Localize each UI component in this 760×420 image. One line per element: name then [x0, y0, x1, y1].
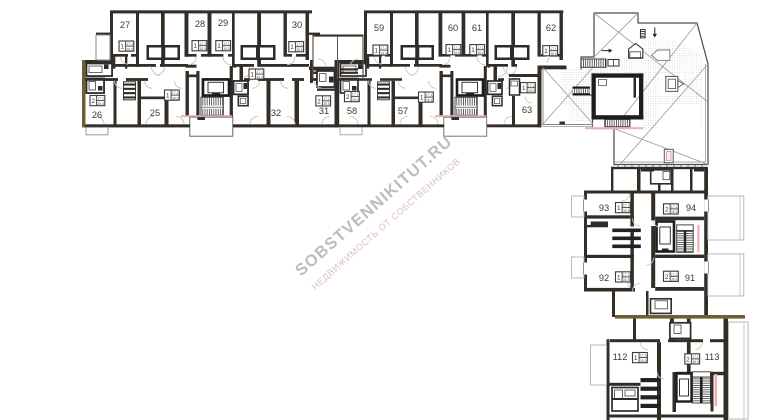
svg-text:1: 1	[544, 48, 548, 55]
svg-text:38.8: 38.8	[126, 47, 133, 51]
svg-text:17.1: 17.1	[126, 42, 133, 46]
svg-text:28: 28	[195, 19, 205, 29]
svg-text:38.8: 38.8	[352, 98, 359, 102]
svg-text:38.8: 38.8	[671, 210, 678, 214]
svg-text:17.1: 17.1	[528, 84, 535, 88]
svg-text:2: 2	[317, 98, 321, 105]
svg-text:91: 91	[685, 273, 695, 283]
svg-text:17.1: 17.1	[623, 273, 630, 277]
svg-text:113: 113	[705, 352, 720, 362]
svg-text:38.8: 38.8	[477, 51, 484, 55]
svg-text:38.8: 38.8	[323, 102, 330, 106]
svg-text:1: 1	[471, 47, 475, 54]
svg-text:29: 29	[218, 18, 228, 28]
svg-text:1: 1	[193, 43, 197, 50]
svg-text:17.1: 17.1	[97, 97, 104, 101]
svg-text:17.1: 17.1	[380, 46, 387, 50]
svg-text:38.8: 38.8	[223, 47, 230, 51]
svg-text:30: 30	[292, 20, 302, 30]
svg-text:31: 31	[319, 106, 329, 116]
svg-text:17.1: 17.1	[199, 42, 206, 46]
svg-text:17.1: 17.1	[477, 46, 484, 50]
svg-text:1: 1	[166, 93, 170, 100]
svg-text:112: 112	[613, 352, 628, 362]
svg-text:2: 2	[686, 356, 690, 363]
svg-text:32: 32	[271, 108, 281, 118]
svg-text:17.1: 17.1	[323, 97, 330, 101]
svg-text:63: 63	[522, 105, 532, 115]
svg-text:1: 1	[217, 43, 221, 50]
svg-text:38.8: 38.8	[671, 278, 678, 282]
svg-text:62: 62	[546, 23, 556, 33]
svg-text:17.1: 17.1	[426, 93, 433, 97]
svg-text:17.1: 17.1	[640, 354, 647, 358]
svg-text:17.1: 17.1	[256, 70, 263, 74]
svg-text:17.1: 17.1	[550, 47, 557, 51]
svg-text:1: 1	[522, 85, 526, 92]
svg-text:38.8: 38.8	[528, 89, 535, 93]
svg-text:1: 1	[250, 72, 254, 79]
svg-text:38.8: 38.8	[426, 98, 433, 102]
svg-text:1: 1	[617, 205, 621, 212]
svg-text:27: 27	[120, 20, 130, 30]
svg-text:2: 2	[346, 94, 350, 101]
svg-text:17.1: 17.1	[671, 272, 678, 276]
svg-text:38.8: 38.8	[97, 102, 104, 106]
svg-text:38.8: 38.8	[172, 96, 179, 100]
svg-text:2: 2	[91, 98, 95, 105]
svg-text:38.8: 38.8	[550, 52, 557, 56]
svg-text:38.8: 38.8	[692, 360, 699, 364]
svg-text:93: 93	[599, 203, 609, 213]
svg-text:1: 1	[634, 355, 638, 362]
svg-text:60: 60	[448, 23, 458, 33]
svg-text:61: 61	[472, 23, 482, 33]
svg-text:58: 58	[347, 106, 357, 116]
svg-text:38.8: 38.8	[296, 48, 303, 52]
svg-text:26: 26	[92, 110, 102, 120]
svg-text:1: 1	[290, 44, 294, 51]
svg-text:17.1: 17.1	[296, 43, 303, 47]
svg-text:17.1: 17.1	[453, 46, 460, 50]
svg-text:17.1: 17.1	[223, 42, 230, 46]
svg-text:1: 1	[447, 47, 451, 54]
svg-text:17.1: 17.1	[623, 204, 630, 208]
svg-text:94: 94	[686, 203, 696, 213]
svg-text:38.8: 38.8	[256, 75, 263, 79]
svg-text:38.8: 38.8	[380, 51, 387, 55]
svg-text:38.8: 38.8	[623, 278, 630, 282]
svg-text:38.8: 38.8	[623, 209, 630, 213]
svg-text:57: 57	[398, 106, 408, 116]
svg-text:17.1: 17.1	[692, 355, 699, 359]
svg-text:92: 92	[599, 273, 609, 283]
svg-text:1: 1	[374, 48, 378, 55]
svg-text:1: 1	[120, 44, 124, 51]
svg-text:1: 1	[420, 95, 424, 102]
svg-text:38.8: 38.8	[453, 51, 460, 55]
svg-text:1: 1	[617, 274, 621, 281]
svg-text:25: 25	[150, 108, 160, 118]
svg-text:2: 2	[665, 206, 669, 213]
svg-text:17.1: 17.1	[172, 91, 179, 95]
svg-text:17.1: 17.1	[671, 205, 678, 209]
svg-text:59: 59	[374, 23, 384, 33]
svg-text:17.1: 17.1	[352, 93, 359, 97]
svg-text:38.8: 38.8	[199, 47, 206, 51]
svg-text:38.8: 38.8	[640, 359, 647, 363]
svg-text:2: 2	[665, 274, 669, 281]
